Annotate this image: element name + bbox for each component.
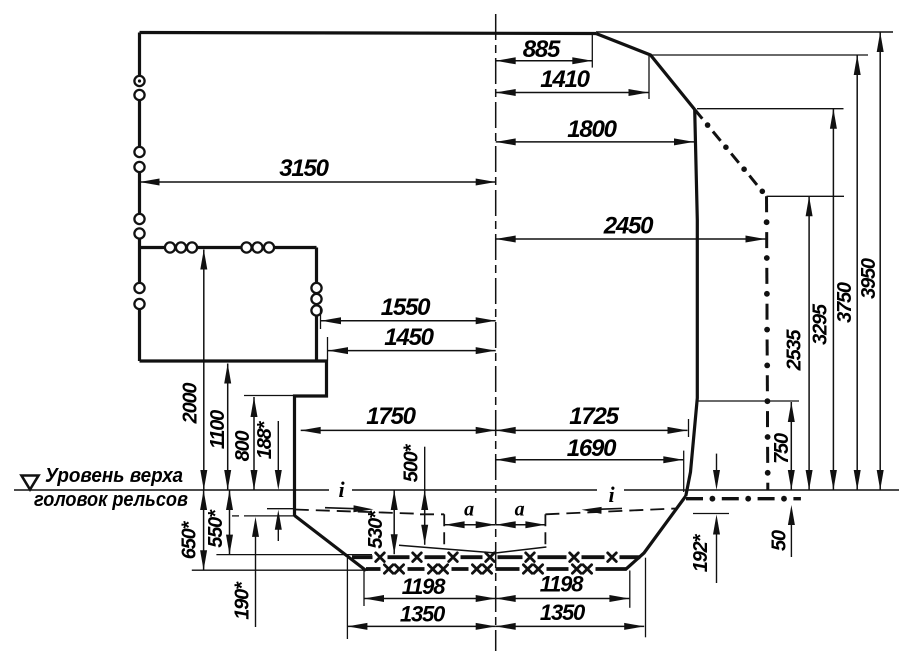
svg-text:550*: 550* <box>205 509 227 548</box>
svg-text:a: a <box>515 499 525 521</box>
svg-text:1350: 1350 <box>400 602 446 627</box>
svg-text:1750: 1750 <box>366 403 416 430</box>
svg-text:1198: 1198 <box>540 572 584 597</box>
svg-text:650*: 650* <box>179 520 201 559</box>
svg-text:500*: 500* <box>401 443 423 482</box>
svg-text:3750: 3750 <box>834 282 856 323</box>
svg-text:1725: 1725 <box>569 403 619 430</box>
svg-text:190*: 190* <box>232 581 254 620</box>
svg-text:головок рельсов: головок рельсов <box>34 488 188 511</box>
svg-text:50: 50 <box>769 530 791 551</box>
svg-text:800: 800 <box>232 431 254 462</box>
svg-text:885: 885 <box>523 36 561 63</box>
svg-text:192*: 192* <box>690 533 712 572</box>
svg-text:1450: 1450 <box>384 324 434 351</box>
svg-text:3150: 3150 <box>279 155 329 182</box>
svg-text:188*: 188* <box>254 420 276 459</box>
svg-text:530*: 530* <box>365 510 387 549</box>
svg-text:750: 750 <box>771 433 793 464</box>
svg-text:1800: 1800 <box>567 116 617 143</box>
svg-text:1550: 1550 <box>381 294 431 321</box>
svg-text:2000: 2000 <box>180 383 202 425</box>
svg-text:1350: 1350 <box>540 600 586 625</box>
svg-text:2450: 2450 <box>603 213 654 240</box>
svg-text:i: i <box>339 477 346 502</box>
svg-text:2535: 2535 <box>784 329 806 372</box>
svg-text:Уровень верха: Уровень верха <box>45 464 183 487</box>
svg-text:1690: 1690 <box>567 435 617 462</box>
svg-text:1198: 1198 <box>402 574 446 599</box>
svg-text:3295: 3295 <box>810 303 832 345</box>
svg-text:1410: 1410 <box>540 66 590 93</box>
svg-text:3950: 3950 <box>858 258 880 299</box>
svg-text:i: i <box>609 482 616 507</box>
svg-text:1100: 1100 <box>207 410 229 449</box>
svg-text:a: a <box>464 499 474 521</box>
